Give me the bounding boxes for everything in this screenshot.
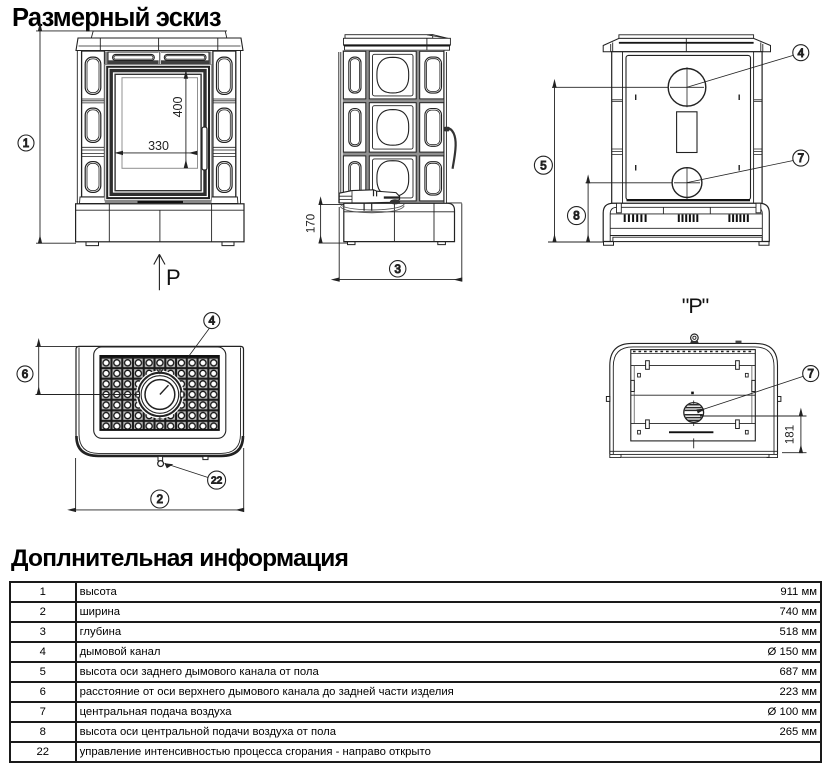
svg-text:2: 2: [157, 494, 163, 506]
svg-text:170: 170: [306, 214, 318, 233]
svg-text:4: 4: [798, 48, 805, 60]
svg-text:P: P: [166, 265, 181, 290]
svg-text:330: 330: [148, 139, 169, 153]
svg-text:"P": "P": [682, 294, 709, 318]
svg-text:8: 8: [573, 211, 579, 223]
svg-text:6: 6: [22, 369, 28, 381]
svg-text:400: 400: [171, 97, 185, 118]
svg-text:7: 7: [807, 369, 813, 381]
svg-text:4: 4: [209, 316, 216, 328]
svg-text:1: 1: [23, 138, 29, 150]
svg-text:3: 3: [394, 264, 400, 276]
svg-text:22: 22: [211, 476, 223, 487]
svg-text:5: 5: [540, 160, 546, 172]
svg-text:7: 7: [798, 153, 804, 165]
svg-text:181: 181: [785, 425, 797, 444]
